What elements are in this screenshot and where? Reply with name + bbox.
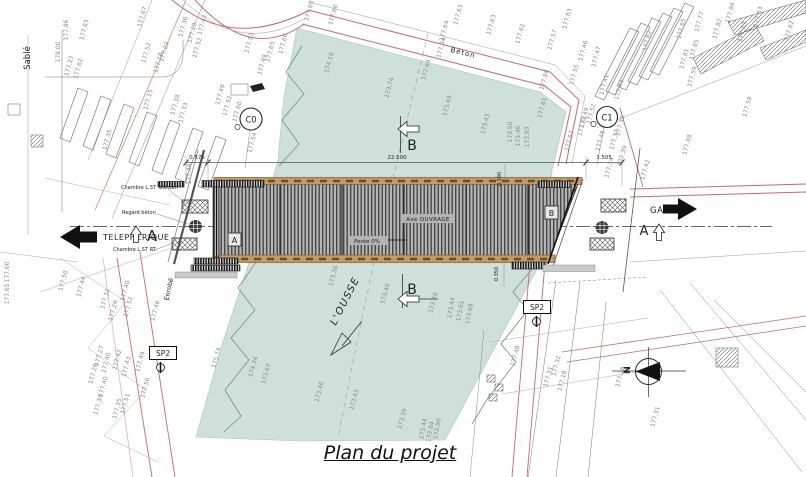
axis-label: Axe OUVRAGE [406, 217, 450, 223]
svg-text:SP2: SP2 [530, 303, 544, 312]
parking-stripes-right [595, 3, 694, 100]
svg-text:B: B [407, 138, 417, 154]
manhole-left [189, 220, 202, 233]
manhole-right [596, 221, 609, 234]
plan-drawing: Axe OUVRAGE Pente 0% A B Chambre L.ST Té… [0, 0, 806, 477]
svg-text:A: A [147, 227, 158, 245]
gare-arrow-icon [663, 198, 697, 220]
north-compass: N [612, 347, 686, 397]
svg-text:B: B [549, 209, 555, 218]
sp2-left: SP2 [150, 347, 177, 374]
beton-label: Béton [450, 46, 477, 60]
dim-left-offset: 0.575 [189, 155, 205, 161]
c0-marker: C0 [235, 108, 262, 168]
slope-label: Pente 0% [354, 239, 380, 245]
sp2-right: SP2 [524, 301, 551, 328]
parking-stripes-left [60, 88, 226, 190]
svg-text:C0: C0 [245, 116, 256, 126]
chambre-telecom-label: Chambre L.ST Télécom [121, 184, 178, 191]
north-needle-icon [636, 362, 661, 381]
regard-beton-label: Regard béton [122, 209, 156, 216]
svg-text:A: A [640, 224, 649, 239]
plan-canvas: Axe OUVRAGE Pente 0% A B Chambre L.ST Té… [0, 0, 806, 477]
dim-walkway-bottom: 0.350 [494, 267, 500, 281]
sable-label: Sablé [22, 46, 33, 70]
dim-span: 22.500 [387, 155, 407, 161]
gare-direction: GARE [650, 198, 697, 220]
dim-walkway-top: 0.190 [497, 172, 503, 186]
hatched-areas [693, 0, 806, 74]
svg-text:C1: C1 [601, 114, 612, 124]
bridge-deck [218, 184, 578, 257]
svg-text:SP2: SP2 [156, 349, 170, 358]
caption: Plan du projet [300, 442, 480, 464]
svg-text:A: A [232, 236, 238, 245]
chambre-rt-label: Chambre L.ST RT. [113, 247, 157, 253]
telepherique-arrow-icon [60, 225, 97, 249]
enrobe-label: Enrobé [163, 277, 176, 301]
north-label: N [623, 366, 633, 374]
deck-end-wall-left [213, 184, 219, 257]
